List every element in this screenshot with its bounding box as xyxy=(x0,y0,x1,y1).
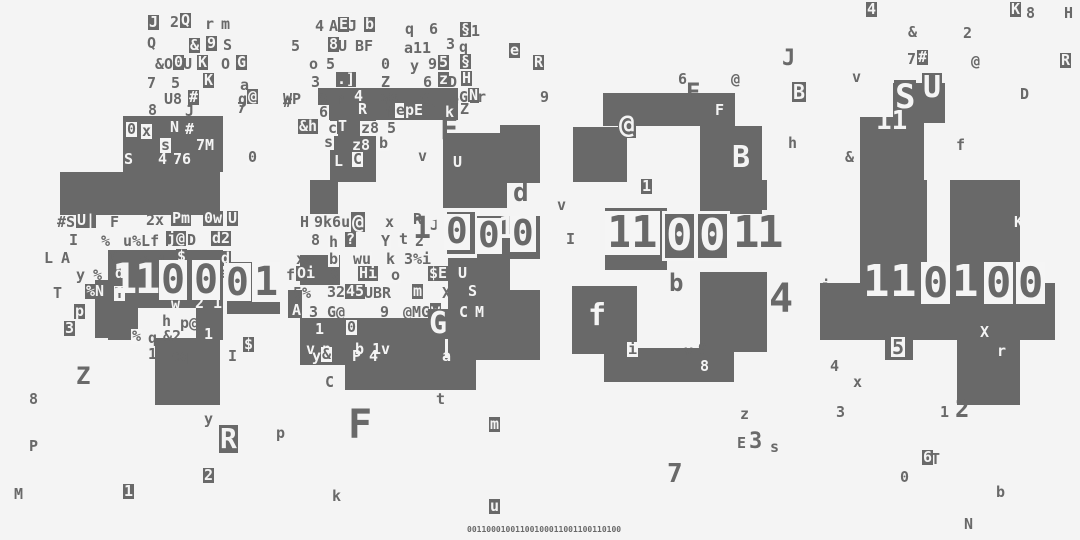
noise-char: 3 xyxy=(64,321,75,336)
noise-char: G xyxy=(236,55,247,70)
noise-char: U xyxy=(338,39,347,54)
noise-char: #S xyxy=(57,215,75,230)
figure-4-digit: 1 xyxy=(952,260,979,304)
noise-char: 8 xyxy=(148,103,157,118)
noise-char: 9 xyxy=(380,305,389,320)
noise-char: b xyxy=(328,252,339,267)
noise-char: 6 xyxy=(318,105,329,120)
noise-char: U| xyxy=(76,213,96,228)
block-fragment xyxy=(310,180,338,214)
noise-char: Z xyxy=(459,102,470,117)
noise-char: % xyxy=(101,234,110,249)
noise-char: x xyxy=(853,375,862,390)
noise-char: @MG xyxy=(403,305,430,320)
noise-char: BF xyxy=(355,39,373,54)
noise-char: C xyxy=(325,375,334,390)
noise-char: F xyxy=(348,405,372,445)
noise-char: 5 xyxy=(891,337,905,357)
noise-char: A xyxy=(61,251,70,266)
noise-char: N xyxy=(964,517,973,532)
block-fragment xyxy=(700,272,767,352)
noise-char: 7 xyxy=(237,101,246,116)
noise-char: f xyxy=(286,268,295,283)
noise-char: 8 xyxy=(700,359,709,374)
noise-char: 3 xyxy=(749,431,762,453)
noise-char: 8 xyxy=(311,233,320,248)
noise-char: Hi xyxy=(358,266,378,281)
noise-char: &O xyxy=(155,57,173,72)
noise-char: X xyxy=(980,325,989,340)
binary-string: 00110001001100100011001100110100 xyxy=(467,526,621,534)
noise-char: & xyxy=(321,347,332,362)
noise-char: $E xyxy=(428,266,448,281)
noise-char: 1 xyxy=(471,24,480,39)
noise-char: j@ xyxy=(166,231,186,246)
noise-char: U xyxy=(227,211,238,226)
noise-char: H xyxy=(300,215,309,230)
noise-char: o xyxy=(390,268,401,283)
noise-char: I xyxy=(69,233,78,248)
noise-char: 8 xyxy=(1026,6,1035,21)
noise-char: v xyxy=(557,198,566,213)
figure-3-digit: 1 xyxy=(757,211,784,255)
noise-char: m xyxy=(221,17,230,32)
noise-char: % xyxy=(93,268,102,283)
noise-char: t xyxy=(398,232,409,247)
noise-char: S xyxy=(124,152,133,167)
noise-char: 7M xyxy=(196,138,214,153)
noise-char: 3 xyxy=(309,305,318,320)
noise-char: 5 xyxy=(291,39,300,54)
noise-char: r xyxy=(205,17,214,32)
noise-char: 8 xyxy=(29,392,38,407)
noise-char: J xyxy=(782,48,795,70)
figure-4-digit: 1 xyxy=(890,260,917,304)
noise-char: v xyxy=(852,70,861,85)
noise-char: F xyxy=(110,215,119,230)
noise-char: 7 xyxy=(147,76,156,91)
noise-char: m xyxy=(412,284,423,299)
noise-char: G@ xyxy=(327,305,345,320)
noise-char: # xyxy=(185,122,194,137)
noise-char: 3%i xyxy=(404,252,431,267)
noise-char: I xyxy=(228,349,237,364)
figure-4-digit: 1 xyxy=(863,260,890,304)
noise-char: k xyxy=(385,252,396,267)
noise-char: U xyxy=(922,73,942,103)
noise-char: D xyxy=(187,233,196,248)
noise-char: D xyxy=(448,75,457,90)
noise-char: Y xyxy=(380,234,391,249)
noise-char: 4 xyxy=(830,359,839,374)
noise-char: T xyxy=(53,286,62,301)
noise-char: 9 xyxy=(698,342,707,357)
noise-char: Z xyxy=(381,75,390,90)
noise-char: v xyxy=(418,149,427,164)
noise-char: J xyxy=(348,19,357,34)
noise-char: 9 xyxy=(428,57,437,72)
noise-char: 6 xyxy=(423,75,432,90)
noise-char: T xyxy=(931,452,940,467)
noise-char: u%Lf xyxy=(123,234,159,249)
noise-char: 5 xyxy=(326,57,335,72)
noise-char: j xyxy=(821,279,830,294)
figure-4-digit: 0 xyxy=(921,262,950,304)
noise-char: & xyxy=(189,38,200,53)
noise-char: e xyxy=(509,43,520,58)
noise-char: H xyxy=(461,71,472,86)
figure-1-digit: 1 xyxy=(112,258,137,300)
noise-char: O xyxy=(221,57,230,72)
noise-char: T xyxy=(233,152,242,167)
noise-char: 2 xyxy=(963,26,972,41)
noise-char: R xyxy=(357,102,368,117)
noise-char: o xyxy=(309,57,318,72)
noise-char: &2 xyxy=(163,329,181,344)
noise-char: E xyxy=(686,80,700,104)
noise-char: § xyxy=(460,54,471,69)
noise-char: b xyxy=(669,271,683,295)
noise-char: v xyxy=(684,344,693,359)
noise-char: p@ xyxy=(180,316,198,331)
noise-char: & xyxy=(845,150,854,165)
noise-char: N xyxy=(170,120,179,135)
block-fragment xyxy=(700,180,767,210)
noise-char: p xyxy=(276,426,285,441)
noise-char: K xyxy=(1014,215,1023,230)
figure-4-digit: 0 xyxy=(984,262,1013,304)
noise-char: K xyxy=(197,55,208,70)
noise-char: D xyxy=(1020,87,1029,102)
noise-char: 7 xyxy=(907,52,916,67)
noise-char: F xyxy=(306,137,315,152)
noise-char: g xyxy=(471,104,480,119)
noise-char: 6 xyxy=(429,22,438,37)
noise-char: x xyxy=(141,124,152,139)
noise-char: 0 xyxy=(126,122,137,137)
noise-char: 2x xyxy=(146,213,164,228)
figure-2-digit: 0 xyxy=(444,214,470,250)
noise-char: @ xyxy=(351,212,365,232)
noise-char: I xyxy=(566,232,575,247)
figure-3-digit: 1 xyxy=(629,211,660,255)
noise-char: Oi xyxy=(296,266,316,281)
noise-char: A xyxy=(291,303,302,318)
noise-char: 2 xyxy=(955,397,969,421)
noise-char: S xyxy=(467,284,478,299)
noise-char: L xyxy=(334,154,343,169)
noise-char: s xyxy=(770,440,779,455)
noise-char: u xyxy=(489,499,500,514)
noise-char: a11 xyxy=(404,41,431,56)
noise-char: 1 xyxy=(148,347,157,362)
noise-char: K xyxy=(1010,2,1021,17)
figure-1-digit: 1 xyxy=(252,262,280,302)
noise-char: d2 xyxy=(211,231,231,246)
noise-char: Z xyxy=(76,364,90,388)
noise-char: R xyxy=(219,425,238,453)
noise-char: R xyxy=(533,55,544,70)
noise-char: y xyxy=(410,59,419,74)
noise-char: ? xyxy=(345,232,356,247)
noise-char: @ xyxy=(247,89,258,104)
noise-char: a xyxy=(442,349,451,364)
noise-char: F xyxy=(440,115,458,145)
figure-4-digit: 0 xyxy=(1016,262,1045,304)
noise-char: G xyxy=(428,309,448,339)
noise-char: UBR xyxy=(364,286,391,301)
noise-char: 76 xyxy=(173,152,191,167)
noise-char: R xyxy=(1060,53,1071,68)
noise-char: %N xyxy=(85,284,105,299)
noise-char: P xyxy=(352,349,361,364)
figure-1-digit: 0 xyxy=(224,263,251,301)
figure-3-digit: 0 xyxy=(662,211,697,261)
noise-char: 4 xyxy=(158,152,167,167)
noise-char: 4 xyxy=(769,279,793,319)
noise-char: 0 xyxy=(247,150,258,165)
noise-char: cq xyxy=(171,349,189,364)
noise-char: H xyxy=(1064,6,1073,21)
noise-char: S xyxy=(223,38,232,53)
noise-char: z xyxy=(740,407,749,422)
noise-char: 45 xyxy=(345,284,365,299)
noise-char: b xyxy=(364,17,375,32)
noise-char: x xyxy=(385,215,394,230)
figure-1-digit: 0 xyxy=(192,260,220,300)
noise-char: z8 xyxy=(360,121,380,136)
noise-char: C xyxy=(459,305,468,320)
noise-char: # xyxy=(917,50,928,65)
noise-char: P xyxy=(29,439,38,454)
figure-3-digit: 0 xyxy=(695,211,730,261)
noise-char: M xyxy=(475,305,484,320)
noise-char: 4 xyxy=(315,19,324,34)
noise-char: 0 xyxy=(381,57,390,72)
noise-char: 9k6u xyxy=(314,215,350,230)
noise-char: Pm xyxy=(171,211,191,226)
noise-char: 3 xyxy=(836,405,845,420)
noise-char: % xyxy=(131,329,142,344)
noise-char: r xyxy=(997,344,1006,359)
noise-char: X xyxy=(442,286,451,301)
figure-1-digit: 0 xyxy=(159,260,187,300)
noise-char: y xyxy=(204,412,213,427)
noise-char: i xyxy=(627,342,638,357)
noise-char: t xyxy=(436,392,445,407)
noise-char: K xyxy=(203,73,214,88)
block-fragment xyxy=(500,125,540,183)
noise-char: p xyxy=(74,304,85,319)
noise-char: 32 xyxy=(327,285,345,300)
noise-char: &h xyxy=(298,119,318,134)
noise-char: @ xyxy=(618,112,636,138)
noise-char: m xyxy=(489,417,500,432)
figure-1-digit: 1 xyxy=(135,258,160,300)
noise-char: E xyxy=(737,436,746,451)
noise-char: 0w xyxy=(203,211,223,226)
noise-char: k xyxy=(332,489,341,504)
noise-char: 9 xyxy=(206,36,217,51)
noise-char: § xyxy=(460,22,471,37)
noise-char: pE xyxy=(404,103,424,118)
noise-char: 5% xyxy=(293,286,311,301)
block-fragment xyxy=(604,348,734,382)
noise-char: B xyxy=(792,82,806,102)
noise-char: 4 xyxy=(866,2,877,17)
noise-char: WP xyxy=(283,92,301,107)
noise-char: L xyxy=(44,251,53,266)
noise-char: 9 xyxy=(540,90,549,105)
noise-char: @ xyxy=(731,72,740,87)
noise-char: n xyxy=(336,92,345,107)
noise-char: J xyxy=(148,15,159,30)
noise-char: F xyxy=(715,103,724,118)
figure-3-digit: 1 xyxy=(733,211,760,255)
noise-char: J xyxy=(185,104,194,119)
noise-char: T xyxy=(337,119,348,134)
noise-char: f xyxy=(587,301,607,331)
noise-char: 0 xyxy=(346,320,357,335)
noise-char: Q xyxy=(180,13,191,28)
noise-char: 1 xyxy=(315,322,324,337)
noise-char: .] xyxy=(336,72,356,87)
block-fragment xyxy=(345,358,476,390)
noise-char: A xyxy=(329,19,338,34)
noise-char: Q xyxy=(147,36,156,51)
noise-char: U xyxy=(183,57,192,72)
noise-char: 1 xyxy=(940,405,949,420)
block-fragment xyxy=(60,172,220,215)
noise-char: h xyxy=(788,136,797,151)
noise-char: M xyxy=(14,487,23,502)
noise-char: 3 xyxy=(446,37,455,52)
block-fragment xyxy=(455,290,540,360)
noise-char: 5 xyxy=(438,55,449,70)
noise-char: U xyxy=(458,266,467,281)
noise-char: B xyxy=(731,143,751,173)
figure-2-digit: 0 xyxy=(510,216,536,252)
noise-char: $ xyxy=(243,337,254,352)
noise-char: h xyxy=(328,235,339,250)
noise-char: 11 xyxy=(876,108,907,134)
block-fragment xyxy=(443,180,503,202)
noise-char: d xyxy=(513,180,529,206)
noise-char: 2 xyxy=(203,468,214,483)
noise-char: 0 xyxy=(900,470,909,485)
ascii-art-canvas: 00110001001100100011001100110100 J2QrmQ&… xyxy=(0,0,1080,540)
noise-char: y xyxy=(312,349,321,364)
noise-char: 2 xyxy=(170,15,179,30)
noise-char: 7 xyxy=(667,461,683,487)
noise-char: C xyxy=(352,152,363,167)
noise-char: y xyxy=(76,268,85,283)
noise-char: U xyxy=(453,155,462,170)
noise-char: q xyxy=(405,22,414,37)
noise-char: U8 xyxy=(163,92,183,107)
noise-char: S xyxy=(330,268,339,283)
noise-char: 4 xyxy=(369,349,378,364)
noise-char: b xyxy=(378,136,389,151)
noise-char: 1 xyxy=(641,179,652,194)
noise-char: s xyxy=(323,135,334,150)
noise-char: 5 xyxy=(171,76,180,91)
noise-char: b xyxy=(996,485,1005,500)
noise-char: N xyxy=(386,105,395,120)
noise-char: 1 xyxy=(203,327,214,342)
noise-char: q xyxy=(148,331,157,346)
noise-char: 3 xyxy=(311,75,320,90)
noise-char: & xyxy=(908,25,917,40)
noise-char: 1 xyxy=(123,484,134,499)
noise-char: @ xyxy=(971,54,980,69)
noise-char: f xyxy=(956,138,965,153)
